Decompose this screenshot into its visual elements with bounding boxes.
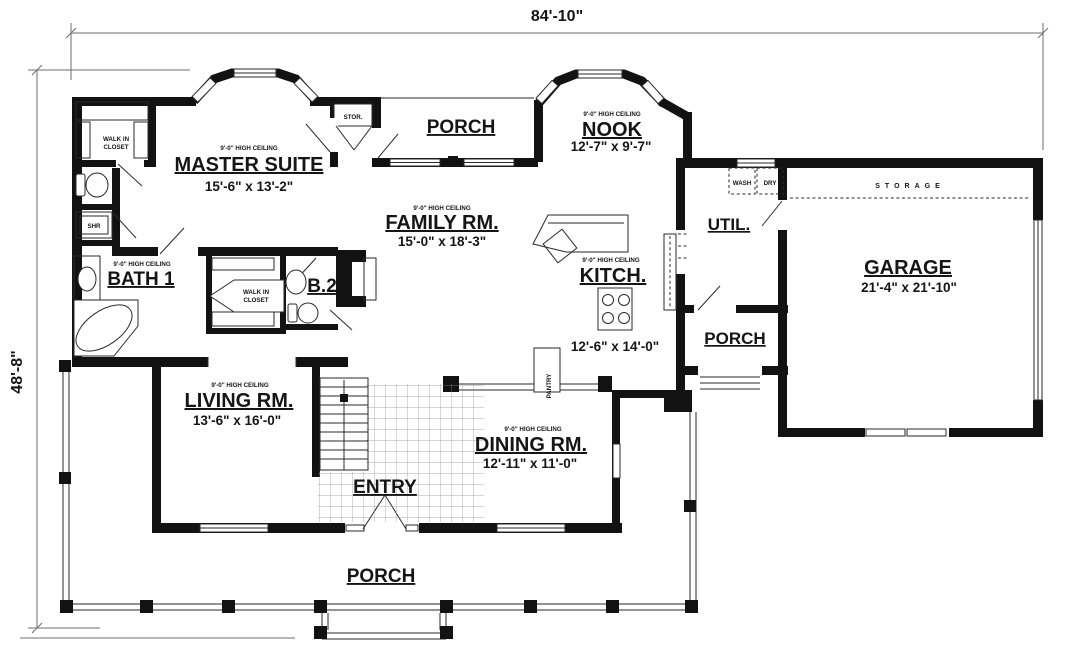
overall-depth-label: 48'-8" [9, 350, 26, 393]
porch-post [314, 626, 327, 639]
window [294, 78, 318, 102]
room-label-porch-side: PORCH [704, 329, 765, 348]
window [642, 80, 664, 103]
door-threshold [406, 525, 418, 531]
floor-plan-drawing: 84'-10" 48'-8" 9'-0" HIGH CEILING MASTER… [0, 0, 1070, 664]
wall [72, 240, 118, 246]
room-label-porch-bottom: PORCH [347, 566, 416, 587]
door-swing [118, 164, 142, 186]
room-label-living-room: LIVING RM. [185, 390, 294, 412]
label-pantry: PANTRY [546, 373, 553, 399]
porch-corner-pier [664, 390, 692, 412]
porch-post [140, 600, 153, 613]
wall [1033, 158, 1043, 220]
toilet-bowl [298, 303, 318, 323]
porch-post [685, 600, 698, 613]
wall [148, 100, 156, 166]
room-label-kitchen: KITCH. [580, 265, 647, 287]
ceiling-note: 9'-0" HIGH CEILING [582, 257, 640, 264]
label-walk-in-closet-1: WALK IN [103, 136, 130, 143]
ceiling-note: 9'-0" HIGH CEILING [504, 426, 562, 433]
porch-post [440, 600, 453, 613]
wall [206, 328, 286, 334]
wall [72, 204, 118, 210]
steps-opening [698, 366, 762, 375]
door-opening [158, 247, 198, 256]
porch-post [59, 360, 71, 372]
room-label-bath-2: B.2 [307, 276, 337, 297]
ceiling-note: 9'-0" HIGH CEILING [413, 205, 471, 212]
pass-opening [676, 230, 685, 274]
room-label-nook: NOOK [582, 119, 643, 141]
room-label-bath-1: BATH 1 [107, 269, 175, 290]
cased-opening [208, 357, 296, 367]
newel-post [340, 394, 348, 402]
wardrobe-hatch [212, 258, 274, 270]
porch-post [60, 600, 73, 613]
door-opening [694, 305, 736, 313]
wardrobe-hatch [134, 122, 148, 158]
porch-post [222, 600, 235, 613]
room-size-kitchen: 12'-6" x 14'-0" [571, 339, 659, 354]
label-washer: WASH [733, 180, 752, 187]
porch-steps [700, 377, 760, 389]
garage-door-panel [866, 429, 905, 436]
sink [286, 270, 306, 294]
floor-plan-page: 84'-10" 48'-8" 9'-0" HIGH CEILING MASTER… [0, 0, 1070, 664]
toilet-bowl [86, 173, 108, 197]
porch-post [440, 626, 453, 639]
wall [312, 357, 320, 477]
toilet-tank [288, 304, 297, 322]
room-label-master-suite: MASTER SUITE [175, 154, 324, 176]
nook-bay-window-wall [660, 101, 690, 118]
label-walk-in-closet-2: WALK IN [243, 289, 270, 296]
overall-width-label: 84'-10" [531, 8, 583, 25]
porch-post [684, 500, 696, 512]
room-size-garage: 21'-4" x 21'-10" [861, 280, 957, 295]
toilet-tank [76, 174, 85, 196]
room-label-porch-top: PORCH [427, 117, 496, 138]
porch-railing [63, 368, 69, 611]
wardrobe-hatch [212, 312, 274, 326]
door-opening [330, 118, 338, 152]
porch-railing [63, 604, 697, 610]
ceiling-note: 9'-0" HIGH CEILING [113, 261, 171, 268]
wall [778, 158, 787, 437]
room-size-nook: 12'-7" x 9'-7" [571, 139, 652, 154]
wall [112, 247, 338, 256]
room-size-master-suite: 15'-6" x 13'-2" [205, 179, 293, 194]
label-stor-closet: STOR. [344, 114, 363, 121]
window [192, 78, 216, 102]
garage-door-panel [907, 429, 946, 436]
porch-post [314, 600, 327, 613]
stoop-railing [322, 613, 446, 639]
label-storage: STORAGE [875, 183, 945, 190]
wall-jamb [598, 376, 612, 392]
label-walk-in-closet-1: CLOSET [103, 144, 128, 151]
wall [280, 324, 338, 330]
porch-post [524, 600, 537, 613]
tub-platform [74, 300, 138, 356]
label-shower: SHR [87, 223, 101, 230]
room-label-family-room: FAMILY RM. [385, 212, 498, 234]
room-size-living-room: 13'-6" x 16'-0" [193, 413, 281, 428]
door-opening [372, 128, 381, 158]
kitchen-corner-counter [533, 215, 628, 252]
wall [152, 357, 161, 533]
stairs-and-entry [318, 378, 484, 522]
ceiling-note: 9'-0" HIGH CEILING [583, 111, 641, 118]
stor-door-swing [336, 126, 372, 150]
room-size-dining-room: 12'-11" x 11'-0" [483, 456, 577, 471]
room-label-dining-room: DINING RM. [475, 434, 587, 456]
stove [598, 288, 632, 330]
ceiling-note: 9'-0" HIGH CEILING [220, 145, 278, 152]
window [613, 444, 620, 478]
door-swing [306, 124, 330, 152]
porch-post [59, 472, 71, 484]
wall [534, 100, 543, 162]
room-label-utility: UTIL. [708, 215, 751, 234]
porch-post [448, 156, 458, 166]
ceiling-note: 9'-0" HIGH CEILING [211, 382, 269, 389]
door-threshold [346, 525, 364, 531]
label-dryer: DRY [764, 180, 778, 187]
room-label-entry: ENTRY [353, 477, 417, 498]
closet-label-banner [210, 280, 284, 312]
firebox [352, 262, 368, 296]
wall [676, 158, 685, 398]
sink [78, 267, 96, 291]
entry-tile-floor [366, 384, 484, 522]
label-walk-in-closet-2: CLOSET [243, 297, 268, 304]
room-size-family-room: 15'-0" x 18'-3" [398, 234, 486, 249]
room-label-garage: GARAGE [864, 257, 952, 279]
porch-post [606, 600, 619, 613]
